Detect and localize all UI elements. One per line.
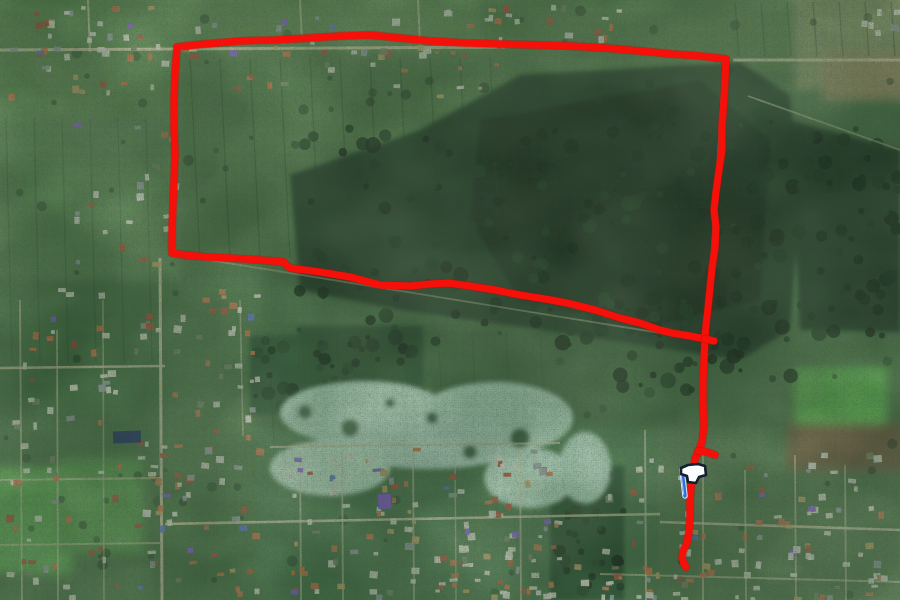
imagery-noise-layer <box>0 0 900 600</box>
satellite-map-viewport[interactable] <box>0 0 900 600</box>
